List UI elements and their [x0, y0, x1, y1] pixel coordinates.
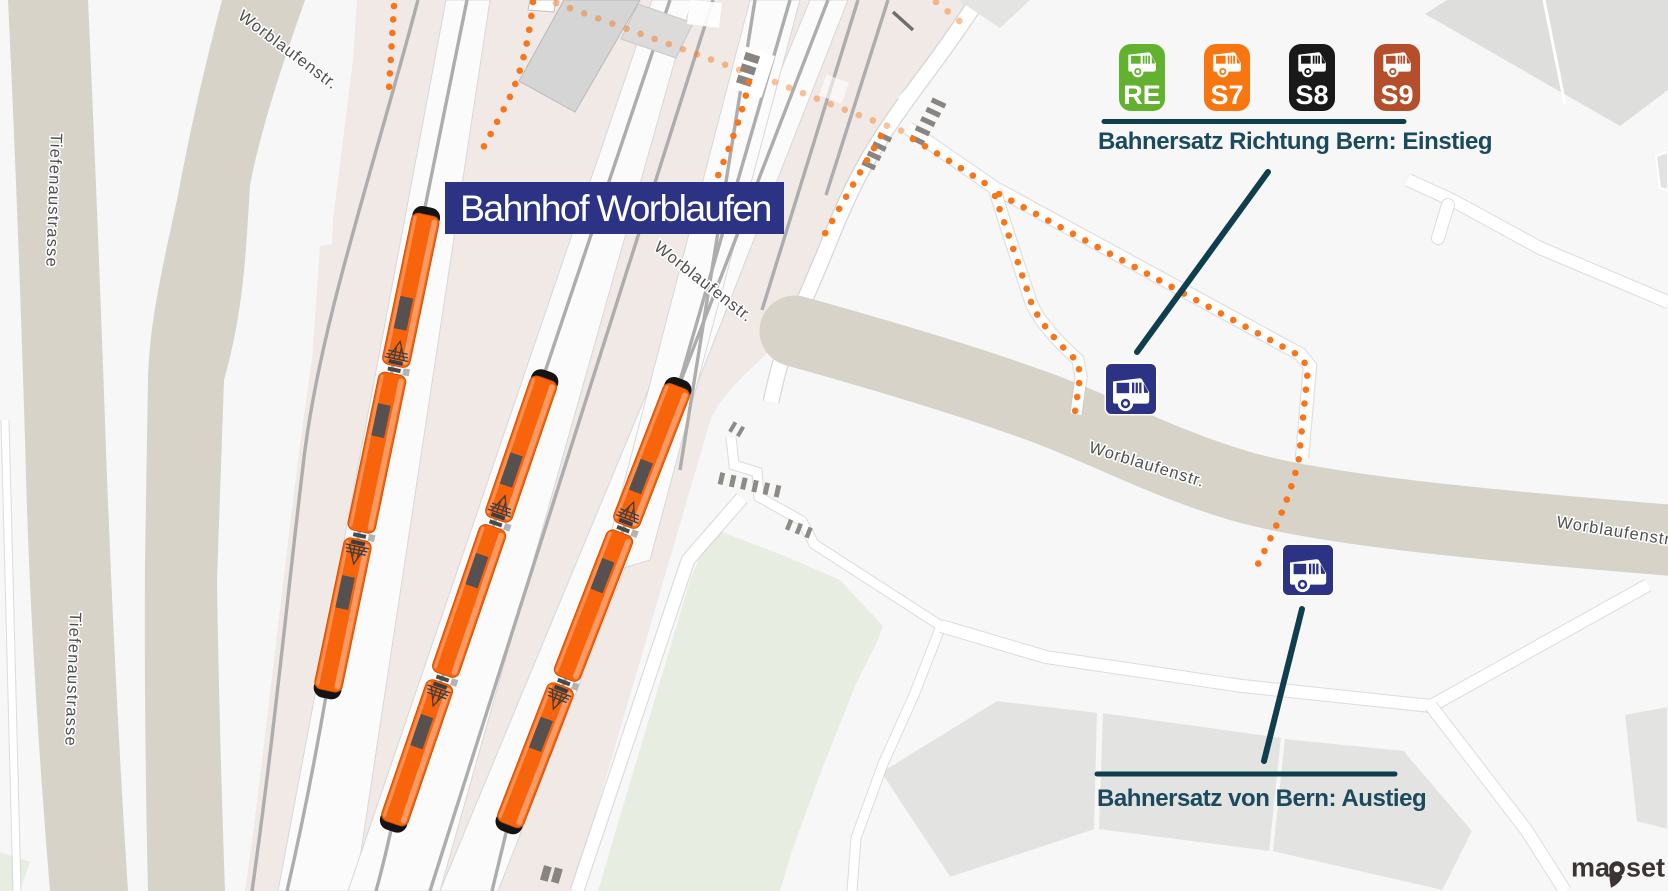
svg-text:RE: RE — [1123, 80, 1161, 110]
svg-text:Bahnersatz Richtung Bern: Eins: Bahnersatz Richtung Bern: Einstieg — [1098, 128, 1492, 155]
svg-text:S8: S8 — [1295, 80, 1328, 110]
svg-text:Bahnhof Worblaufen: Bahnhof Worblaufen — [460, 187, 771, 229]
svg-text:set: set — [1626, 853, 1665, 883]
svg-text:S7: S7 — [1210, 80, 1243, 110]
svg-text:ma: ma — [1571, 853, 1611, 883]
svg-text:S9: S9 — [1380, 80, 1413, 110]
svg-text:Bahnersatz von Bern: Austieg: Bahnersatz von Bern: Austieg — [1097, 785, 1426, 812]
